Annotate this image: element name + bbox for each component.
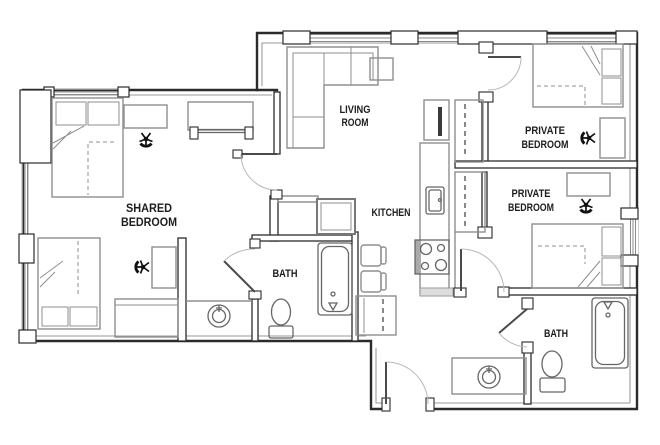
toilet <box>540 351 565 392</box>
desk <box>567 173 610 196</box>
closet <box>455 100 483 162</box>
dresser <box>115 299 178 337</box>
door-swing <box>499 309 527 347</box>
wall-bath1-right <box>352 232 358 341</box>
sink <box>478 366 500 388</box>
bar-chair <box>361 245 386 266</box>
room-label: SHARED <box>126 201 172 215</box>
desk <box>600 118 625 158</box>
door-swing <box>224 249 255 292</box>
bathtub <box>318 243 352 315</box>
room-label: LIVING <box>340 104 371 116</box>
task-chair-icon <box>136 261 150 274</box>
kitchen-sink <box>426 187 444 214</box>
bathtub <box>592 298 628 368</box>
floor-plan: SHARED BEDROOM BATH <box>0 0 660 445</box>
bed <box>52 98 123 197</box>
sink <box>208 305 230 327</box>
floor-plan-page: SHARED BEDROOM BATH <box>0 0 660 445</box>
bed <box>533 44 623 107</box>
cabinet <box>424 100 449 140</box>
closet <box>356 296 396 335</box>
room-bath-2: BATH <box>540 298 628 392</box>
closet <box>455 172 485 232</box>
desk <box>152 247 176 288</box>
room-label: KITCHEN <box>372 207 411 219</box>
door-swing <box>233 150 277 190</box>
room-private-bedroom-1: PRIVATE BEDROOM <box>522 44 626 158</box>
task-chair-icon <box>580 199 593 213</box>
room-bath-1: BATH <box>269 199 355 338</box>
wall-vanity-nook <box>178 238 186 341</box>
interior-walls <box>178 42 637 411</box>
door-swing <box>488 57 521 90</box>
sectional-sofa <box>287 47 378 148</box>
toilet <box>269 299 293 338</box>
room-label: PRIVATE <box>512 188 551 200</box>
wall-bath2-left <box>524 352 531 404</box>
vanity-area <box>186 301 252 327</box>
bar-chair <box>361 271 386 292</box>
windows <box>19 31 638 343</box>
room-kitchen: KITCHEN <box>356 100 453 335</box>
corner-pier <box>20 90 51 163</box>
door-swing <box>461 249 504 292</box>
bed <box>38 238 100 329</box>
room-label: BEDROOM <box>522 139 569 151</box>
wall-bath1-left <box>252 299 258 341</box>
wall-pb2-bath2 <box>503 288 637 295</box>
room-label: BEDROOM <box>508 202 554 214</box>
room-label: BATH <box>273 268 298 280</box>
task-chair-icon <box>140 133 153 147</box>
room-label: BEDROOM <box>121 215 177 229</box>
wall-shared-living <box>274 92 280 154</box>
desk <box>124 105 167 128</box>
task-chair-icon <box>582 132 596 145</box>
bed <box>532 224 623 288</box>
room-private-bedroom-2: PRIVATE BEDROOM <box>508 173 623 288</box>
counter-end <box>420 288 453 296</box>
wardrobe <box>188 102 253 139</box>
room-label: ROOM <box>342 117 369 129</box>
room-living-room: LIVING ROOM <box>287 47 393 148</box>
counter <box>420 143 449 294</box>
entry-door-swing <box>386 362 428 404</box>
vanity-area <box>452 358 526 394</box>
refrigerator <box>317 199 355 234</box>
room-label: BATH <box>544 328 568 340</box>
room-label: PRIVATE <box>525 125 565 137</box>
